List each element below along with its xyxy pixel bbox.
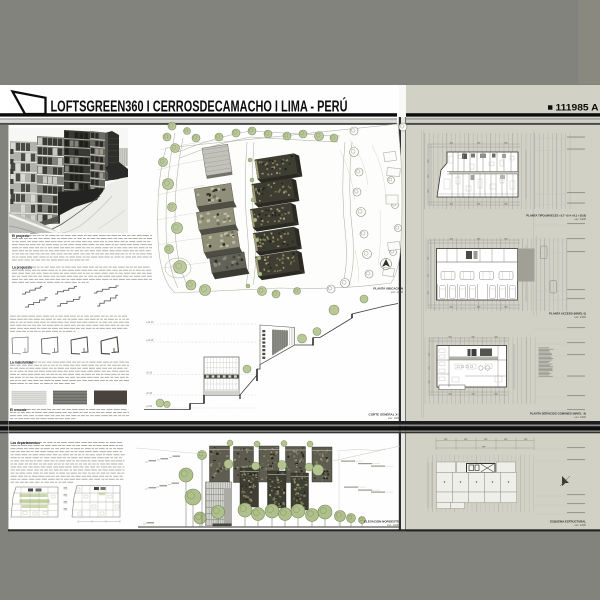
svg-text:111985 A: 111985 A	[556, 102, 599, 113]
svg-text:El remonte: El remonte	[10, 408, 27, 412]
svg-text:La propuesta: La propuesta	[12, 265, 32, 269]
svg-text:+0.00: +0.00	[146, 405, 153, 408]
svg-text:esc. 1/200: esc. 1/200	[574, 316, 586, 319]
svg-text:+11.40: +11.40	[146, 339, 154, 342]
svg-text:+8.10: +8.10	[146, 372, 153, 375]
svg-text:+14.10: +14.10	[146, 321, 154, 324]
svg-text:La materialidad: La materialidad	[10, 360, 33, 364]
svg-text:esc. 1/200: esc. 1/200	[388, 416, 401, 420]
svg-text:El proyecto: El proyecto	[12, 234, 29, 238]
svg-text:esc. 1/200: esc. 1/200	[574, 218, 586, 221]
svg-text:PLANTA UBICACIÓN: PLANTA UBICACIÓN	[373, 286, 403, 291]
svg-text:esc. 1/200: esc. 1/200	[574, 416, 586, 419]
svg-text:esc. 1/500: esc. 1/500	[391, 290, 404, 294]
svg-text:esc. 1/200: esc. 1/200	[387, 523, 400, 527]
svg-text:esc. 1/200: esc. 1/200	[574, 524, 586, 527]
svg-text:LOFTSGREEN360 I CERROSDECAMACH: LOFTSGREEN360 I CERROSDECAMACHO I LIMA -…	[51, 98, 348, 116]
svg-text:Los departamentos: Los departamentos	[11, 441, 41, 445]
svg-text:+5.40: +5.40	[146, 392, 153, 395]
